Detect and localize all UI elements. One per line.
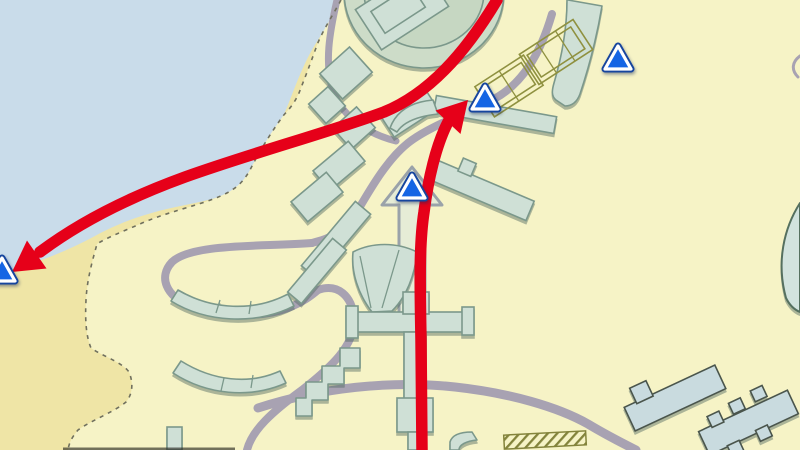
map-viewport [0,0,800,450]
resort-map [0,0,800,450]
small-house [167,427,182,450]
